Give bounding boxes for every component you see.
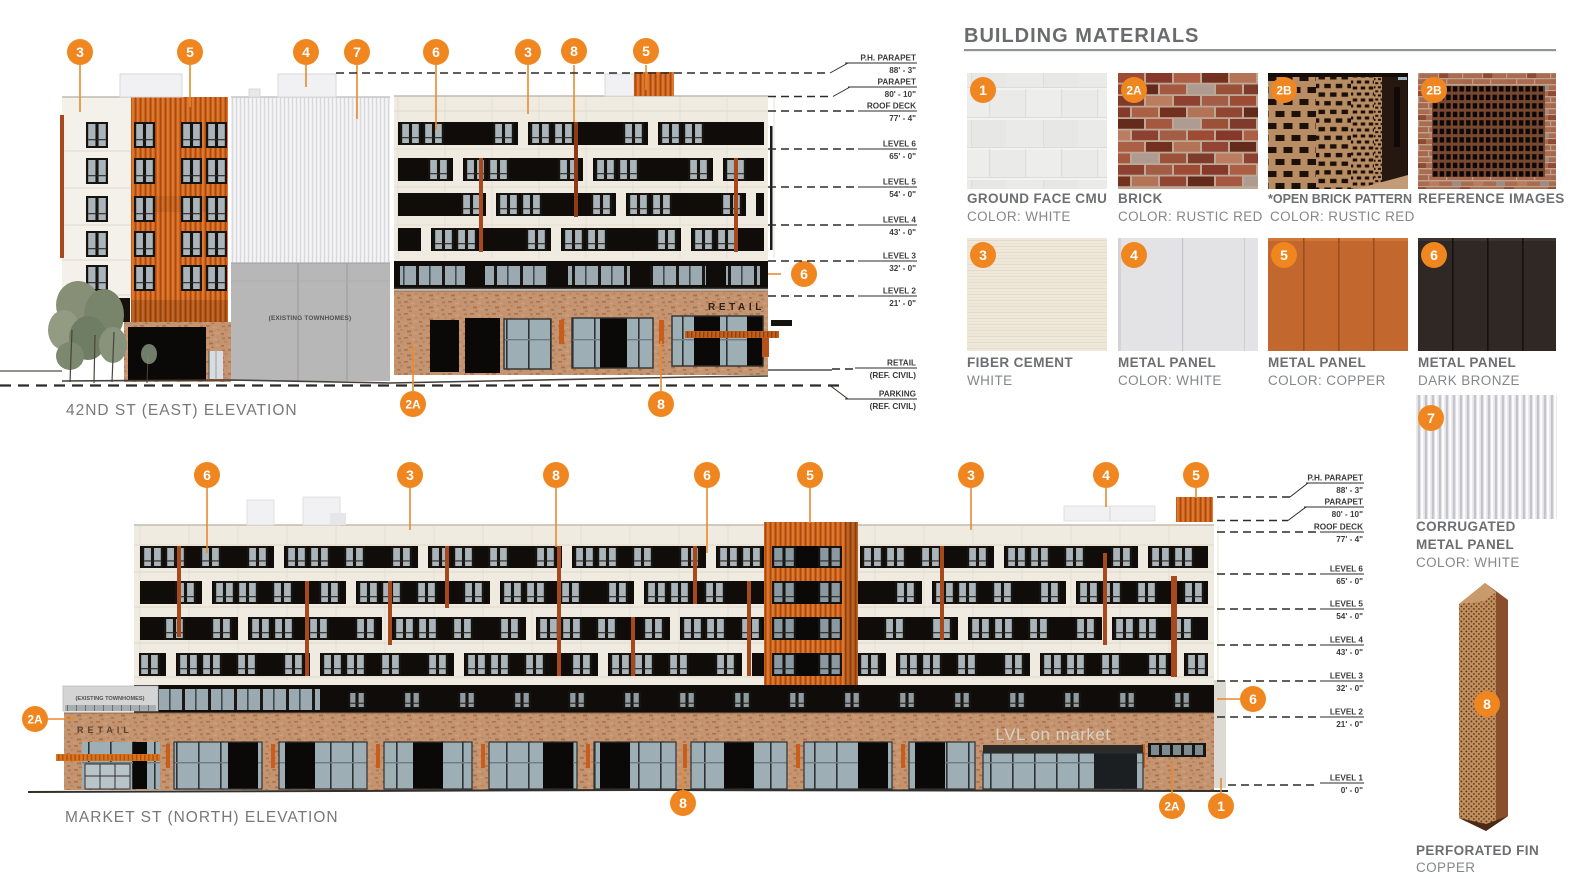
svg-text:5: 5 bbox=[642, 43, 650, 59]
svg-text:COLOR: RUSTIC RED: COLOR: RUSTIC RED bbox=[1270, 209, 1415, 224]
svg-text:6: 6 bbox=[432, 44, 440, 60]
svg-text:METAL PANEL: METAL PANEL bbox=[1118, 355, 1216, 370]
svg-text:65' - 0": 65' - 0" bbox=[1336, 577, 1363, 586]
svg-text:RETAIL: RETAIL bbox=[708, 302, 765, 313]
svg-text:2A: 2A bbox=[405, 397, 421, 411]
svg-text:COPPER: COPPER bbox=[1416, 860, 1475, 875]
svg-text:32' - 0": 32' - 0" bbox=[1336, 684, 1363, 693]
svg-text:6: 6 bbox=[1249, 691, 1257, 707]
svg-text:80' - 10": 80' - 10" bbox=[885, 90, 916, 99]
svg-text:77' - 4": 77' - 4" bbox=[889, 114, 916, 123]
svg-text:2A: 2A bbox=[1126, 83, 1142, 97]
svg-text:CORRUGATED: CORRUGATED bbox=[1416, 519, 1516, 534]
svg-text:METAL PANEL: METAL PANEL bbox=[1416, 537, 1514, 552]
svg-text:(REF. CIVIL): (REF. CIVIL) bbox=[870, 402, 917, 411]
svg-text:8: 8 bbox=[657, 396, 665, 412]
svg-text:43' - 0": 43' - 0" bbox=[1336, 648, 1363, 657]
svg-text:GROUND FACE CMU: GROUND FACE CMU bbox=[967, 191, 1107, 206]
svg-text:(EXISTING TOWNHOMES): (EXISTING TOWNHOMES) bbox=[269, 315, 352, 322]
svg-text:LVL on market: LVL on market bbox=[995, 725, 1110, 744]
svg-text:0' - 0": 0' - 0" bbox=[1341, 786, 1363, 795]
svg-text:METAL PANEL: METAL PANEL bbox=[1268, 355, 1366, 370]
svg-text:80' - 10": 80' - 10" bbox=[1332, 510, 1363, 519]
svg-text:7: 7 bbox=[353, 44, 361, 60]
svg-text:21' - 0": 21' - 0" bbox=[889, 299, 916, 308]
svg-text:LEVEL 4: LEVEL 4 bbox=[883, 216, 917, 225]
svg-text:2B: 2B bbox=[1276, 83, 1292, 97]
svg-text:5: 5 bbox=[186, 44, 194, 60]
svg-text:54' - 0": 54' - 0" bbox=[889, 190, 916, 199]
svg-text:LEVEL 5: LEVEL 5 bbox=[1330, 600, 1364, 609]
svg-text:LEVEL 6: LEVEL 6 bbox=[1330, 565, 1364, 574]
svg-text:5: 5 bbox=[806, 467, 814, 483]
svg-text:5: 5 bbox=[1280, 247, 1288, 263]
svg-text:8: 8 bbox=[570, 43, 578, 59]
svg-text:77' - 4": 77' - 4" bbox=[1336, 535, 1363, 544]
svg-text:PERFORATED FIN: PERFORATED FIN bbox=[1416, 843, 1539, 858]
svg-text:3: 3 bbox=[967, 467, 975, 483]
svg-text:(REF. CIVIL): (REF. CIVIL) bbox=[870, 371, 917, 380]
svg-text:3: 3 bbox=[76, 44, 84, 60]
svg-text:PARAPET: PARAPET bbox=[877, 78, 916, 87]
svg-text:REFERENCE IMAGES: REFERENCE IMAGES bbox=[1418, 191, 1565, 206]
svg-text:ROOF DECK: ROOF DECK bbox=[867, 102, 916, 111]
svg-text:LEVEL 5: LEVEL 5 bbox=[883, 178, 917, 187]
svg-text:BUILDING MATERIALS: BUILDING MATERIALS bbox=[964, 25, 1199, 47]
svg-text:FIBER CEMENT: FIBER CEMENT bbox=[967, 355, 1073, 370]
svg-text:RETAIL: RETAIL bbox=[887, 359, 916, 368]
svg-text:LEVEL 3: LEVEL 3 bbox=[883, 252, 917, 261]
svg-text:65' - 0": 65' - 0" bbox=[889, 152, 916, 161]
svg-text:3: 3 bbox=[524, 44, 532, 60]
svg-text:8: 8 bbox=[552, 467, 560, 483]
svg-text:6: 6 bbox=[1430, 247, 1438, 263]
svg-text:P.H. PARAPET: P.H. PARAPET bbox=[1307, 474, 1363, 483]
svg-text:LEVEL 6: LEVEL 6 bbox=[883, 140, 917, 149]
svg-text:MARKET ST (NORTH) ELEVATION: MARKET ST (NORTH) ELEVATION bbox=[65, 809, 339, 826]
svg-text:COLOR: WHITE: COLOR: WHITE bbox=[967, 209, 1071, 224]
svg-text:32' - 0": 32' - 0" bbox=[889, 264, 916, 273]
svg-text:LEVEL 3: LEVEL 3 bbox=[1330, 672, 1364, 681]
svg-text:LEVEL 2: LEVEL 2 bbox=[1330, 708, 1364, 717]
svg-text:COLOR: WHITE: COLOR: WHITE bbox=[1416, 555, 1520, 570]
svg-text:PARAPET: PARAPET bbox=[1324, 498, 1363, 507]
svg-text:METAL PANEL: METAL PANEL bbox=[1418, 355, 1516, 370]
svg-text:6: 6 bbox=[203, 467, 211, 483]
svg-text:21' - 0": 21' - 0" bbox=[1336, 720, 1363, 729]
svg-text:DARK BRONZE: DARK BRONZE bbox=[1418, 373, 1520, 388]
svg-text:2B: 2B bbox=[1426, 83, 1442, 97]
svg-text:WHITE: WHITE bbox=[967, 373, 1013, 388]
svg-text:4: 4 bbox=[1102, 467, 1110, 483]
svg-text:COLOR: COPPER: COLOR: COPPER bbox=[1268, 373, 1386, 388]
svg-text:*OPEN BRICK PATTERN: *OPEN BRICK PATTERN bbox=[1268, 192, 1412, 206]
svg-text:88' - 3": 88' - 3" bbox=[1336, 486, 1363, 495]
svg-text:8: 8 bbox=[679, 795, 687, 811]
svg-text:COLOR: WHITE: COLOR: WHITE bbox=[1118, 373, 1222, 388]
svg-text:54' - 0": 54' - 0" bbox=[1336, 612, 1363, 621]
svg-text:5: 5 bbox=[1192, 467, 1200, 483]
svg-text:COLOR: RUSTIC RED: COLOR: RUSTIC RED bbox=[1118, 209, 1263, 224]
svg-text:LEVEL 1: LEVEL 1 bbox=[1330, 774, 1364, 783]
svg-text:BRICK: BRICK bbox=[1118, 191, 1163, 206]
svg-text:2A: 2A bbox=[27, 712, 43, 726]
svg-text:P.H. PARAPET: P.H. PARAPET bbox=[860, 54, 916, 63]
svg-text:LEVEL 2: LEVEL 2 bbox=[883, 287, 917, 296]
svg-text:(EXISTING TOWNHOMES): (EXISTING TOWNHOMES) bbox=[76, 696, 145, 702]
svg-text:3: 3 bbox=[979, 247, 987, 263]
svg-text:LEVEL 4: LEVEL 4 bbox=[1330, 636, 1364, 645]
svg-text:43' - 0": 43' - 0" bbox=[889, 228, 916, 237]
svg-text:ROOF DECK: ROOF DECK bbox=[1314, 523, 1363, 532]
svg-text:6: 6 bbox=[703, 467, 711, 483]
svg-text:7: 7 bbox=[1427, 410, 1435, 426]
svg-text:4: 4 bbox=[302, 44, 310, 60]
svg-text:8: 8 bbox=[1483, 696, 1491, 712]
svg-text:4: 4 bbox=[1130, 247, 1138, 263]
svg-text:42ND ST (EAST) ELEVATION: 42ND ST (EAST) ELEVATION bbox=[66, 402, 298, 419]
svg-text:88' - 3": 88' - 3" bbox=[889, 66, 916, 75]
svg-text:1: 1 bbox=[979, 82, 987, 98]
svg-text:2A: 2A bbox=[1164, 799, 1180, 813]
svg-text:RETAIL: RETAIL bbox=[77, 725, 133, 735]
svg-text:3: 3 bbox=[406, 467, 414, 483]
svg-text:6: 6 bbox=[800, 266, 808, 282]
svg-text:1: 1 bbox=[1217, 798, 1225, 814]
svg-text:PARKING: PARKING bbox=[879, 390, 916, 399]
